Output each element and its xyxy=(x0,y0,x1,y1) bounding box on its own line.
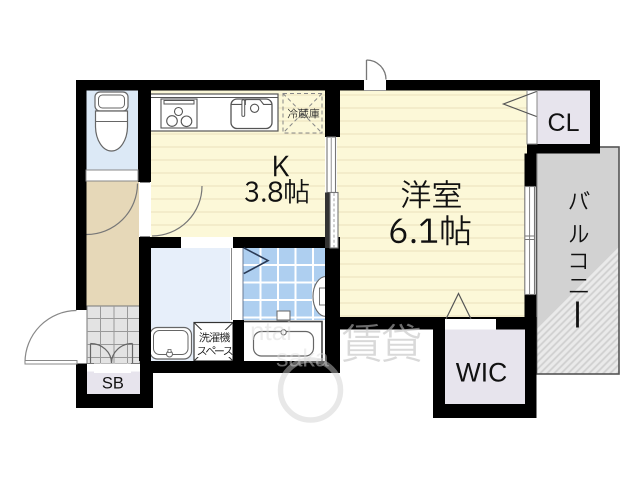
svg-text:CL: CL xyxy=(548,109,580,137)
svg-text:SB: SB xyxy=(102,374,124,392)
svg-text:ntai: ntai xyxy=(250,316,292,346)
svg-text:WIC: WIC xyxy=(456,357,508,387)
